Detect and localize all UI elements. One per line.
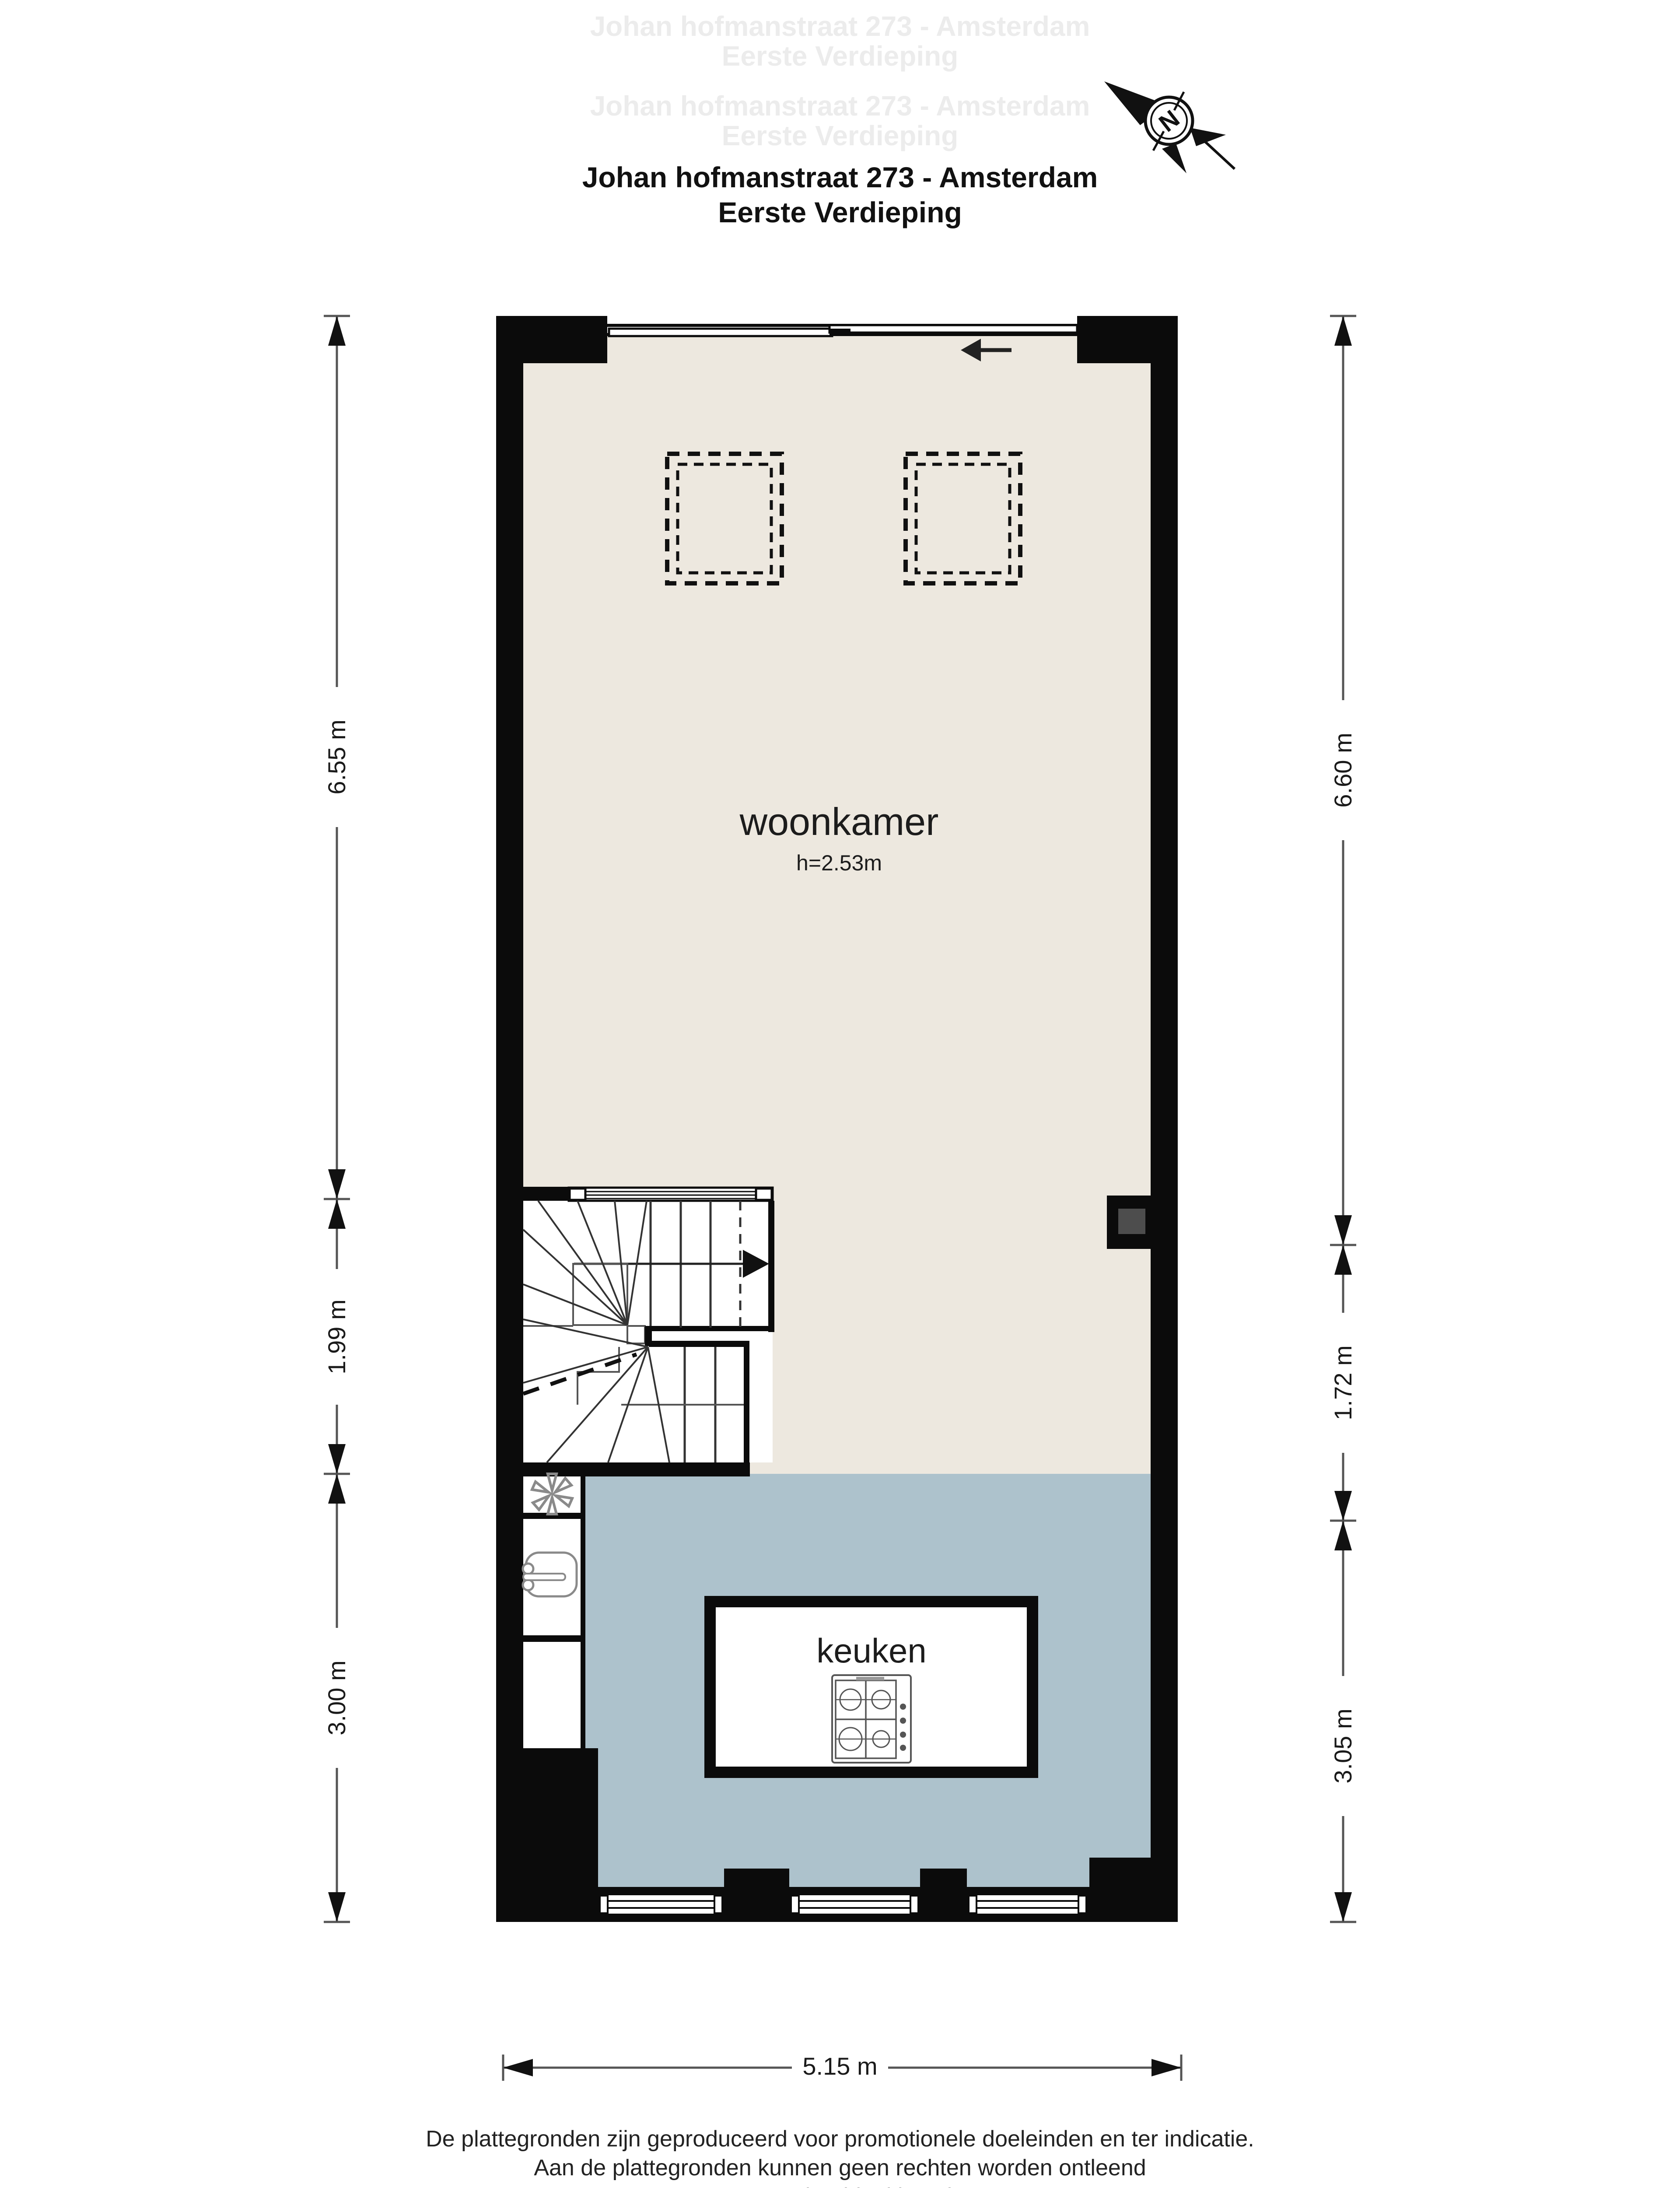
- dim-left-1: 6.55 m: [325, 719, 349, 794]
- living-room-label: woonkamer: [740, 803, 939, 841]
- staircase: [496, 1187, 774, 1476]
- footer-line1: De plattegronden zijn geproduceerd voor …: [0, 2128, 1680, 2150]
- stove-icon: [832, 1675, 911, 1763]
- dim-right-1: 6.60 m: [1331, 733, 1355, 807]
- dim-bottom-1: 5.15 m: [802, 2054, 877, 2079]
- dim-right-2: 1.72 m: [1331, 1345, 1355, 1420]
- sink-icon: [523, 1553, 577, 1596]
- kitchen-counter: [523, 1476, 585, 1748]
- window-bottom-left: [598, 1894, 724, 1915]
- dim-right-3: 3.05 m: [1331, 1708, 1355, 1783]
- sliding-door-top: [607, 324, 1077, 336]
- kitchen-label: keuken: [816, 1634, 927, 1668]
- dim-left-3: 3.00 m: [325, 1660, 349, 1735]
- dim-left-2: 1.99 m: [325, 1299, 349, 1374]
- floorplan-page: { "header": { "title_line1": "Johan hofm…: [0, 0, 1680, 2188]
- window-bottom-middle: [789, 1894, 920, 1915]
- footer-line3: © www.beeldpakket.nl: [0, 2185, 1680, 2188]
- duct-box: [1107, 1196, 1152, 1249]
- footer-line2: Aan de plattegronden kunnen geen rechten…: [0, 2156, 1680, 2179]
- stair-railing: [569, 1188, 773, 1201]
- floorplan-drawing: [0, 0, 1680, 2188]
- window-bottom-right: [967, 1894, 1088, 1915]
- living-room-height-label: h=2.53m: [796, 852, 882, 874]
